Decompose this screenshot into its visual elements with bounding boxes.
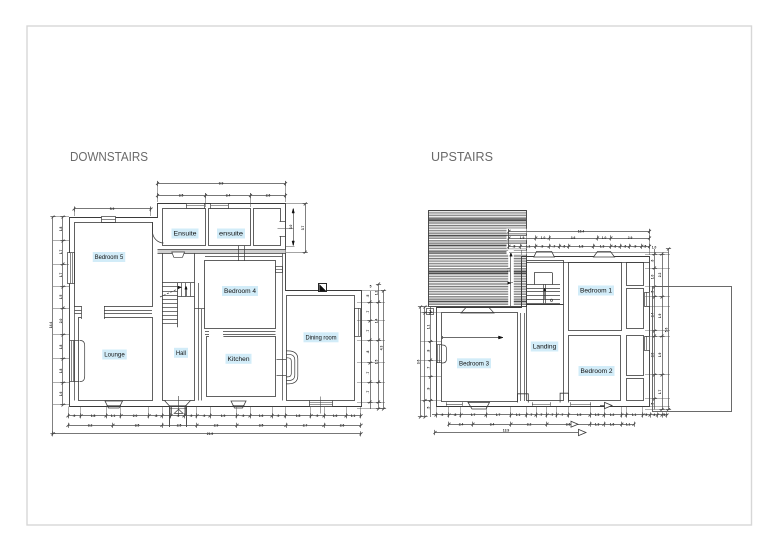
svg-text:1.1: 1.1 <box>632 413 637 417</box>
svg-text:3.5: 3.5 <box>135 423 140 427</box>
svg-text:1.6: 1.6 <box>259 414 264 418</box>
svg-text:3.4: 3.4 <box>490 422 495 426</box>
svg-text:.7: .7 <box>426 366 430 369</box>
svg-text:1.8: 1.8 <box>296 414 301 418</box>
svg-text:2.6: 2.6 <box>340 423 345 427</box>
svg-text:3.2: 3.2 <box>88 423 93 427</box>
svg-text:1.0: 1.0 <box>650 275 654 280</box>
svg-text:.8: .8 <box>513 244 516 248</box>
svg-text:1.1: 1.1 <box>111 414 116 418</box>
svg-text:1.3: 1.3 <box>600 244 605 248</box>
svg-text:1.2: 1.2 <box>610 413 615 417</box>
svg-text:.8: .8 <box>366 350 370 353</box>
svg-text:1.6: 1.6 <box>333 414 338 418</box>
svg-text:.9: .9 <box>316 414 319 418</box>
svg-text:.5: .5 <box>644 244 647 248</box>
svg-text:.7: .7 <box>366 329 370 332</box>
svg-text:3.5: 3.5 <box>179 194 184 198</box>
svg-text:10.4: 10.4 <box>578 229 585 233</box>
svg-text:1.5: 1.5 <box>59 295 63 300</box>
svg-text:3.0: 3.0 <box>289 225 293 230</box>
svg-text:.5: .5 <box>645 413 648 417</box>
svg-text:1.5: 1.5 <box>595 413 600 417</box>
svg-text:1.5: 1.5 <box>577 413 582 417</box>
svg-text:.7: .7 <box>561 413 564 417</box>
svg-text:1.9: 1.9 <box>221 414 226 418</box>
svg-text:.9: .9 <box>203 414 206 418</box>
svg-text:2.6: 2.6 <box>266 194 271 198</box>
svg-text:5: 5 <box>370 285 372 289</box>
svg-text:1.0: 1.0 <box>652 245 657 249</box>
svg-text:.7: .7 <box>366 310 370 313</box>
svg-text:4.3: 4.3 <box>379 346 383 351</box>
svg-text:2.9: 2.9 <box>628 236 633 240</box>
svg-text:.9: .9 <box>177 414 180 418</box>
svg-text:1.3: 1.3 <box>595 422 600 426</box>
svg-text:.9: .9 <box>441 413 444 417</box>
svg-text:1.2: 1.2 <box>374 291 378 296</box>
svg-text:.5: .5 <box>426 406 430 409</box>
svg-text:ensuite: ensuite <box>219 231 244 238</box>
svg-text:.9: .9 <box>541 244 544 248</box>
svg-text:.4: .4 <box>653 413 656 417</box>
svg-text:Dining room: Dining room <box>306 335 337 342</box>
svg-text:.9: .9 <box>73 414 76 418</box>
svg-text:1.1: 1.1 <box>426 325 430 330</box>
svg-text:1.0: 1.0 <box>541 236 546 240</box>
svg-text:3.4: 3.4 <box>507 268 511 273</box>
svg-text:.9: .9 <box>277 414 280 418</box>
svg-text:1.6: 1.6 <box>59 392 63 397</box>
svg-text:5.6: 5.6 <box>664 328 668 333</box>
svg-text:2.2: 2.2 <box>658 273 662 278</box>
svg-text:1.8: 1.8 <box>59 345 63 350</box>
svg-text:1.1: 1.1 <box>626 422 631 426</box>
svg-text:3.5: 3.5 <box>259 423 264 427</box>
svg-text:Bedroom 2: Bedroom 2 <box>581 368 613 375</box>
svg-text:Lounge: Lounge <box>104 352 125 359</box>
svg-text:1.7: 1.7 <box>658 390 662 395</box>
svg-text:3.6: 3.6 <box>566 422 571 426</box>
svg-text:1.5: 1.5 <box>374 360 378 365</box>
svg-text:5.9: 5.9 <box>110 207 115 211</box>
svg-text:1.1: 1.1 <box>516 413 521 417</box>
svg-text:.7: .7 <box>530 413 533 417</box>
svg-text:.7: .7 <box>366 371 370 374</box>
svg-text:.9: .9 <box>426 387 430 390</box>
svg-text:2.0: 2.0 <box>133 414 138 418</box>
svg-text:3.6: 3.6 <box>571 236 576 240</box>
svg-text:UPSTAIRS: UPSTAIRS <box>431 150 493 164</box>
svg-text:.9: .9 <box>190 414 193 418</box>
svg-text:.6: .6 <box>614 244 617 248</box>
svg-text:3.2: 3.2 <box>527 422 532 426</box>
svg-text:.4: .4 <box>663 413 666 417</box>
svg-text:14.4: 14.4 <box>49 322 53 329</box>
svg-text:9.9: 9.9 <box>219 182 224 186</box>
svg-text:1.9: 1.9 <box>520 236 525 240</box>
svg-text:.5: .5 <box>366 294 370 297</box>
svg-text:1.7: 1.7 <box>59 250 63 255</box>
svg-text:2.0: 2.0 <box>59 319 63 324</box>
svg-text:1.9: 1.9 <box>658 314 662 319</box>
svg-text:3.6: 3.6 <box>416 360 420 365</box>
svg-text:.6: .6 <box>563 244 566 248</box>
svg-text:.7: .7 <box>540 413 543 417</box>
svg-text:2.4: 2.4 <box>459 422 464 426</box>
svg-text:.7: .7 <box>551 413 554 417</box>
svg-text:1.9: 1.9 <box>658 353 662 358</box>
svg-text:Hall: Hall <box>176 350 186 357</box>
svg-text:1.6: 1.6 <box>610 422 615 426</box>
svg-text:Bedroom 3: Bedroom 3 <box>459 361 489 368</box>
svg-text:Bedroom 5: Bedroom 5 <box>95 254 124 261</box>
svg-text:.8: .8 <box>155 414 158 418</box>
svg-text:1.1: 1.1 <box>526 244 531 248</box>
svg-text:.9: .9 <box>242 414 245 418</box>
svg-text:Bedroom 4: Bedroom 4 <box>224 288 256 295</box>
svg-text:1.8: 1.8 <box>91 414 96 418</box>
svg-text:.9: .9 <box>634 244 637 248</box>
svg-text:.7: .7 <box>553 244 556 248</box>
svg-text:.8: .8 <box>426 349 430 352</box>
svg-text:DOWNSTAIRS: DOWNSTAIRS <box>70 150 148 164</box>
svg-text:.7: .7 <box>366 390 370 393</box>
svg-text:1.7: 1.7 <box>496 413 501 417</box>
svg-text:1.7: 1.7 <box>471 413 476 417</box>
svg-text:2.5: 2.5 <box>177 423 182 427</box>
svg-text:1.7: 1.7 <box>59 273 63 278</box>
svg-text:2.9: 2.9 <box>214 423 219 427</box>
svg-text:1.0: 1.0 <box>602 236 607 240</box>
svg-text:Ensuite: Ensuite <box>174 231 198 238</box>
svg-text:.6: .6 <box>650 259 654 262</box>
svg-text:3.4: 3.4 <box>226 194 231 198</box>
svg-text:1.8: 1.8 <box>579 244 584 248</box>
svg-text:1.4: 1.4 <box>374 319 378 324</box>
svg-text:.6: .6 <box>624 244 627 248</box>
svg-text:2.7: 2.7 <box>303 423 308 427</box>
svg-text:1.8: 1.8 <box>59 369 63 374</box>
svg-text:21.9: 21.9 <box>207 432 214 436</box>
svg-text:Bedroom 1: Bedroom 1 <box>580 288 612 295</box>
svg-text:Landing: Landing <box>533 344 557 351</box>
svg-text:1.8: 1.8 <box>59 227 63 232</box>
svg-text:1.1: 1.1 <box>351 414 356 418</box>
svg-text:.8: .8 <box>454 413 457 417</box>
svg-text:13.9: 13.9 <box>503 428 510 432</box>
svg-text:3.7: 3.7 <box>301 226 305 231</box>
svg-text:Kitchen: Kitchen <box>228 356 251 363</box>
